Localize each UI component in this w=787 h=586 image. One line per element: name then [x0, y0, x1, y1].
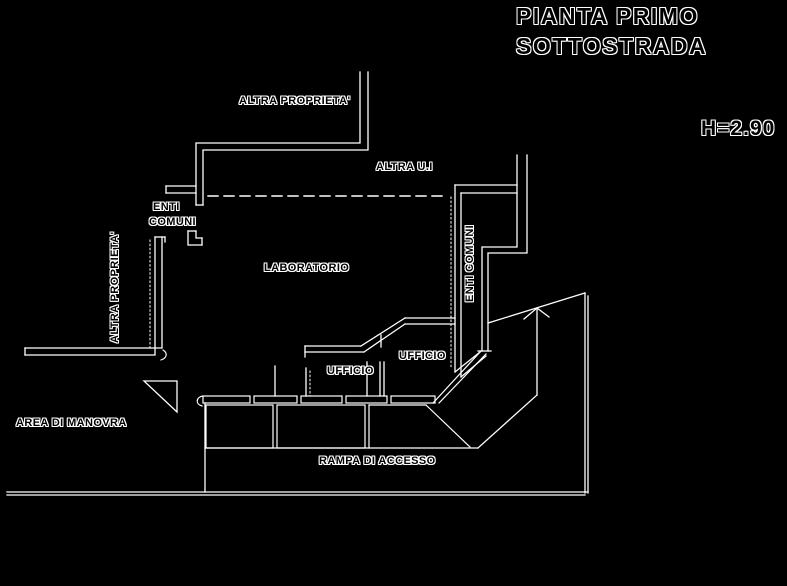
- parking-bays: [206, 405, 470, 448]
- plan-title-line1: PIANTA PRIMO: [516, 3, 699, 30]
- label-rampa-di-accesso: RAMPA DI ACCESSO: [319, 455, 436, 467]
- label-enti-comuni-left-line2: COMUNI: [149, 216, 196, 228]
- tee-wall: [166, 186, 196, 193]
- label-enti-comuni-right: ENTI COMUNI: [464, 225, 476, 302]
- label-altra-proprieta-top: ALTRA PROPRIETA': [239, 95, 350, 107]
- maneuver-triangle: [144, 381, 177, 412]
- label-altra-ui: ALTRA U.I: [376, 161, 433, 173]
- height-note: H=2.90: [701, 117, 775, 141]
- enti-comuni-hook-wall: [188, 231, 202, 245]
- top-boundary-wall: [196, 72, 368, 205]
- left-boundary-wall: [25, 237, 166, 360]
- plan-title-line2: SOTTOSTRADA: [516, 33, 707, 60]
- label-ufficio-left: UFFICIO: [327, 365, 374, 377]
- label-ufficio-right: UFFICIO: [399, 350, 446, 362]
- label-altra-proprieta-left: ALTRA PROPRIETA': [109, 232, 121, 343]
- floor-plan-canvas: PIANTA PRIMO SOTTOSTRADA H=2.90 ALTRA PR…: [0, 0, 787, 586]
- label-laboratorio: LABORATORIO: [264, 262, 349, 274]
- ramp-outline: [7, 293, 588, 495]
- label-enti-comuni-left-line1: ENTI: [153, 201, 180, 213]
- label-area-di-manovra: AREA DI MANOVRA: [16, 417, 127, 429]
- curb-end-hook: [197, 396, 203, 406]
